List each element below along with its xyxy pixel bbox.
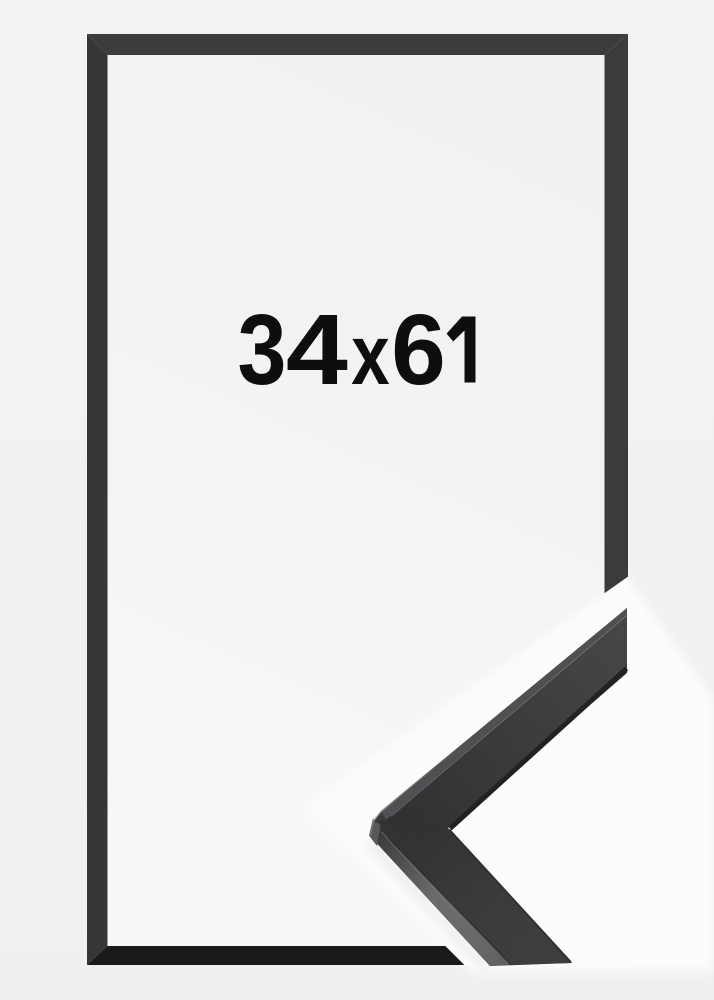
svg-text:3: 3 bbox=[237, 294, 286, 405]
svg-text:x: x bbox=[351, 308, 389, 402]
svg-text:6: 6 bbox=[391, 293, 446, 405]
svg-text:4: 4 bbox=[286, 294, 348, 405]
